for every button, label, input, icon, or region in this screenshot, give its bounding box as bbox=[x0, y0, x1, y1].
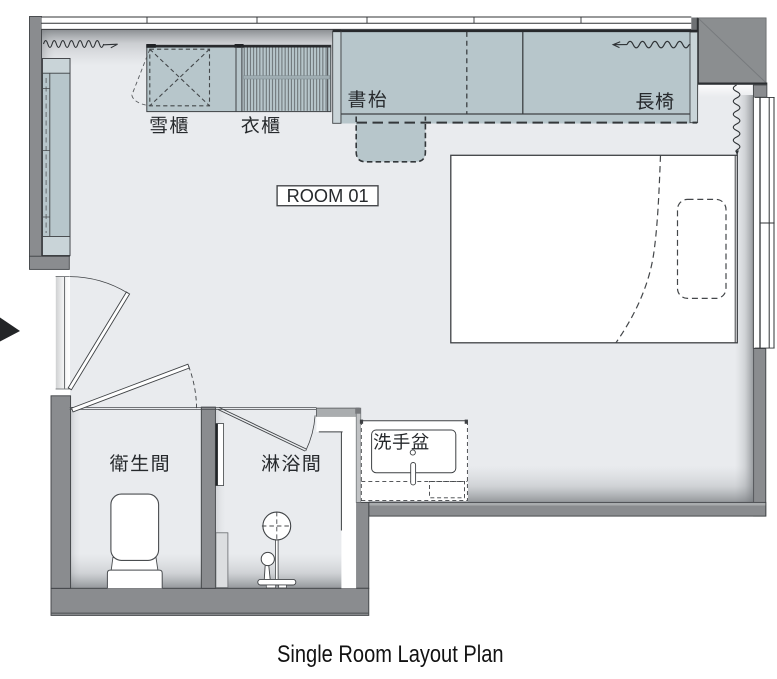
svg-text:Single Room Layout Plan: Single Room Layout Plan bbox=[277, 641, 504, 668]
svg-text:ROOM 01: ROOM 01 bbox=[287, 185, 369, 206]
